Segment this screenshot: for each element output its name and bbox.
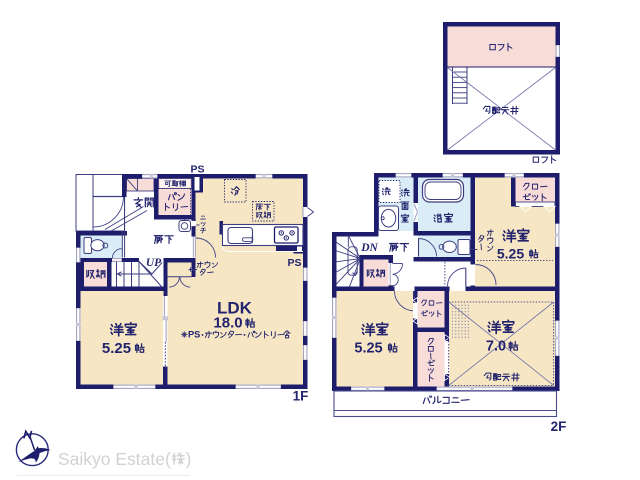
svg-text:18.0: 18.0 bbox=[213, 315, 242, 332]
svg-text:PS: PS bbox=[287, 257, 301, 269]
svg-text:UP: UP bbox=[146, 257, 162, 269]
svg-text:Saikyo Estate(: Saikyo Estate( bbox=[58, 449, 171, 469]
svg-text:PS: PS bbox=[190, 163, 204, 175]
svg-text:7.0: 7.0 bbox=[486, 339, 506, 355]
svg-text:1F: 1F bbox=[293, 389, 309, 404]
svg-text:2F: 2F bbox=[551, 419, 567, 434]
svg-text:5.25: 5.25 bbox=[102, 340, 131, 357]
svg-text:5.25: 5.25 bbox=[354, 340, 382, 356]
svg-text:): ) bbox=[186, 449, 192, 469]
svg-text:5.25: 5.25 bbox=[497, 245, 524, 261]
svg-text:DN: DN bbox=[360, 242, 378, 254]
svg-text:PS: PS bbox=[188, 330, 200, 340]
